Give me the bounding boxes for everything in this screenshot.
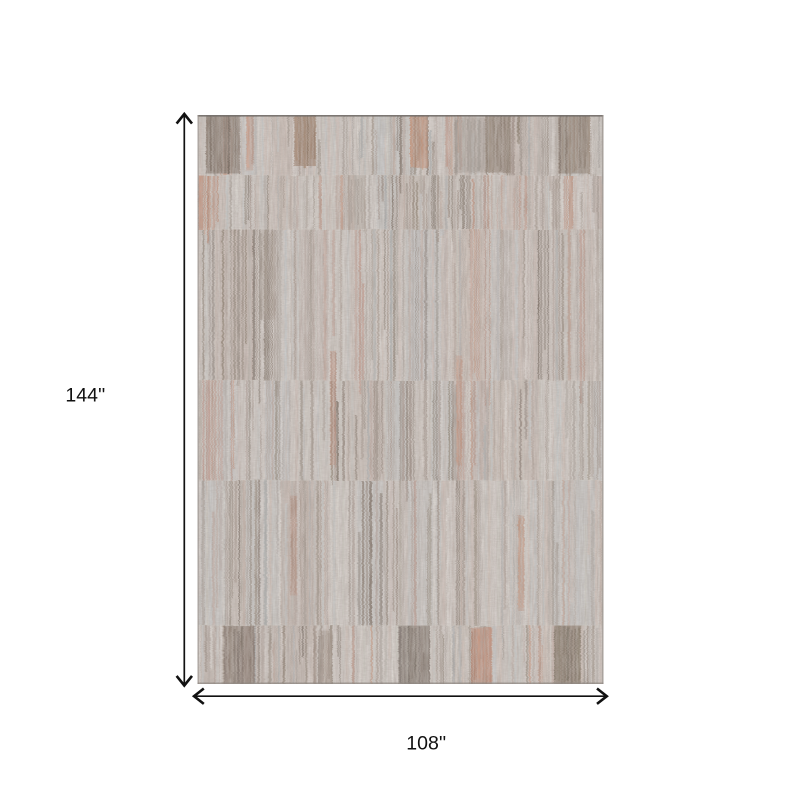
svg-text:144'': 144'': [65, 385, 105, 407]
svg-text:108'': 108'': [406, 732, 446, 754]
